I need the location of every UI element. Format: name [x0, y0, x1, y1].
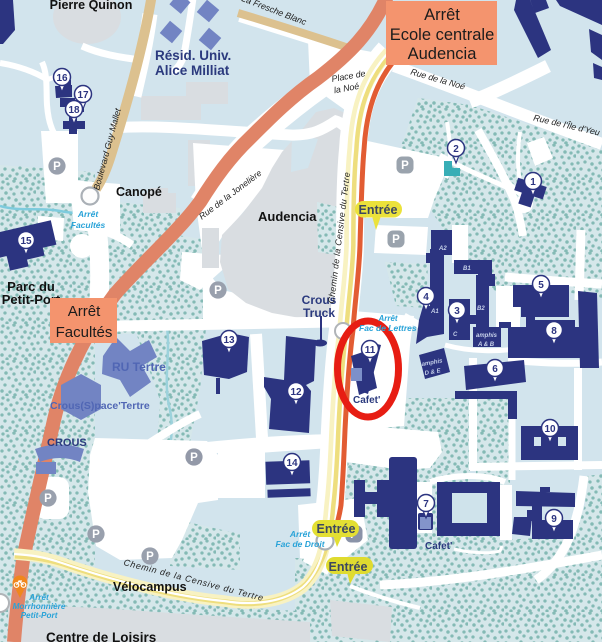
svg-text:P: P — [401, 160, 409, 172]
svg-text:P: P — [392, 234, 400, 246]
svg-text:B2: B2 — [477, 306, 485, 312]
svg-text:Facultés: Facultés — [71, 220, 106, 230]
svg-text:15: 15 — [20, 236, 32, 247]
svg-text:Truck: Truck — [303, 306, 335, 320]
svg-text:Audencia: Audencia — [408, 45, 478, 63]
svg-text:P: P — [92, 529, 100, 541]
svg-text:Facultés: Facultés — [56, 324, 113, 341]
svg-text:Pierre Quinon: Pierre Quinon — [50, 0, 133, 12]
svg-text:12: 12 — [290, 387, 302, 398]
svg-text:10: 10 — [544, 424, 556, 435]
svg-text:16: 16 — [56, 73, 68, 84]
svg-text:Arrêt: Arrêt — [68, 303, 101, 320]
svg-text:C: C — [453, 332, 458, 338]
svg-text:Arrêt: Arrêt — [424, 6, 460, 24]
svg-text:Fac de Lettres: Fac de Lettres — [359, 323, 417, 333]
svg-text:P: P — [214, 285, 222, 297]
svg-text:5: 5 — [538, 280, 544, 291]
svg-text:Morrhonnière: Morrhonnière — [13, 602, 66, 611]
svg-text:4: 4 — [423, 292, 429, 303]
svg-text:Entrée: Entrée — [329, 560, 368, 574]
svg-text:Arrêt: Arrêt — [289, 529, 311, 539]
svg-text:CROUS: CROUS — [47, 437, 87, 449]
svg-text:9: 9 — [551, 514, 557, 525]
svg-text:18: 18 — [68, 105, 80, 116]
svg-text:Centre de Loisirs: Centre de Loisirs — [46, 630, 156, 642]
svg-text:8: 8 — [551, 326, 557, 337]
svg-text:B1: B1 — [463, 266, 471, 272]
svg-text:P: P — [44, 493, 52, 505]
svg-text:2: 2 — [453, 144, 459, 155]
svg-text:Fac de Droit: Fac de Droit — [275, 539, 325, 549]
svg-text:Entrée: Entrée — [317, 522, 356, 536]
svg-text:1: 1 — [530, 177, 536, 188]
svg-text:A2: A2 — [438, 246, 447, 252]
svg-text:3: 3 — [454, 306, 460, 317]
svg-text:Entrée: Entrée — [359, 203, 398, 217]
svg-text:A & B: A & B — [477, 342, 495, 348]
svg-text:Canopé: Canopé — [116, 185, 162, 199]
svg-text:RU Tertre: RU Tertre — [112, 360, 166, 374]
svg-text:14: 14 — [286, 458, 298, 469]
svg-text:Arrêt: Arrêt — [28, 593, 49, 602]
svg-text:Arrêt: Arrêt — [377, 314, 397, 323]
svg-text:Crous(S)pace'Tertre: Crous(S)pace'Tertre — [50, 400, 150, 412]
svg-text:Arrêt: Arrêt — [77, 209, 99, 219]
svg-text:Audencia: Audencia — [258, 209, 317, 224]
svg-text:17: 17 — [77, 90, 89, 101]
svg-text:7: 7 — [423, 499, 429, 510]
svg-text:Ecole centrale: Ecole centrale — [390, 26, 495, 44]
svg-text:11: 11 — [365, 345, 376, 356]
svg-text:13: 13 — [223, 335, 235, 346]
svg-text:6: 6 — [492, 364, 498, 375]
svg-text:Alice Milliat: Alice Milliat — [155, 63, 230, 78]
svg-text:P: P — [190, 452, 198, 464]
svg-text:Résid. Univ.: Résid. Univ. — [155, 48, 231, 63]
svg-text:Vélocampus: Vélocampus — [113, 580, 187, 594]
svg-text:P: P — [53, 161, 61, 173]
svg-text:Cafet': Cafet' — [353, 395, 380, 406]
svg-text:Petit-Port: Petit-Port — [21, 611, 58, 620]
svg-text:amphis: amphis — [476, 333, 498, 339]
svg-text:Cafet': Cafet' — [425, 541, 452, 552]
svg-text:P: P — [146, 551, 154, 563]
svg-text:A1: A1 — [430, 309, 439, 315]
